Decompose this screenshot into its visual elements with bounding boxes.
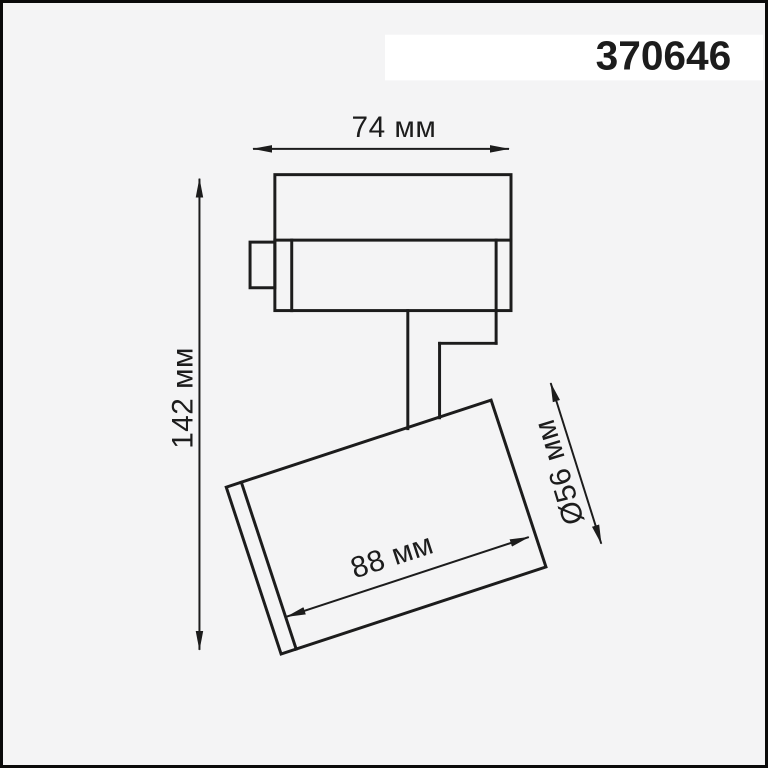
- drawing-page: 370646 74 мм 142 мм: [0, 0, 768, 768]
- dim-adapter-width: 74 мм: [253, 111, 509, 149]
- track-adapter-body: [275, 175, 511, 311]
- product-code: 370646: [596, 32, 732, 78]
- dim-head-length-label: 88 мм: [347, 527, 438, 585]
- lamp-head: 88 мм: [226, 400, 546, 654]
- product-code-box: 370646: [385, 32, 763, 80]
- lamp-head-rear-cap-line: [241, 482, 296, 649]
- lamp-head-body: [226, 400, 546, 654]
- spotlight-dimension-drawing: 370646 74 мм 142 мм: [3, 3, 765, 765]
- dim-head-diameter-label: Ø56 мм: [528, 415, 591, 528]
- dim-adapter-width-label: 74 мм: [352, 111, 437, 144]
- dim-overall-height: 142 мм: [167, 179, 200, 650]
- track-adapter: [250, 175, 511, 344]
- track-adapter-knob: [250, 242, 275, 288]
- dim-overall-height-label: 142 мм: [167, 347, 200, 449]
- dim-head-length: 88 мм: [274, 498, 529, 616]
- dim-head-diameter: Ø56 мм: [528, 383, 601, 544]
- mounting-arm: [408, 311, 496, 429]
